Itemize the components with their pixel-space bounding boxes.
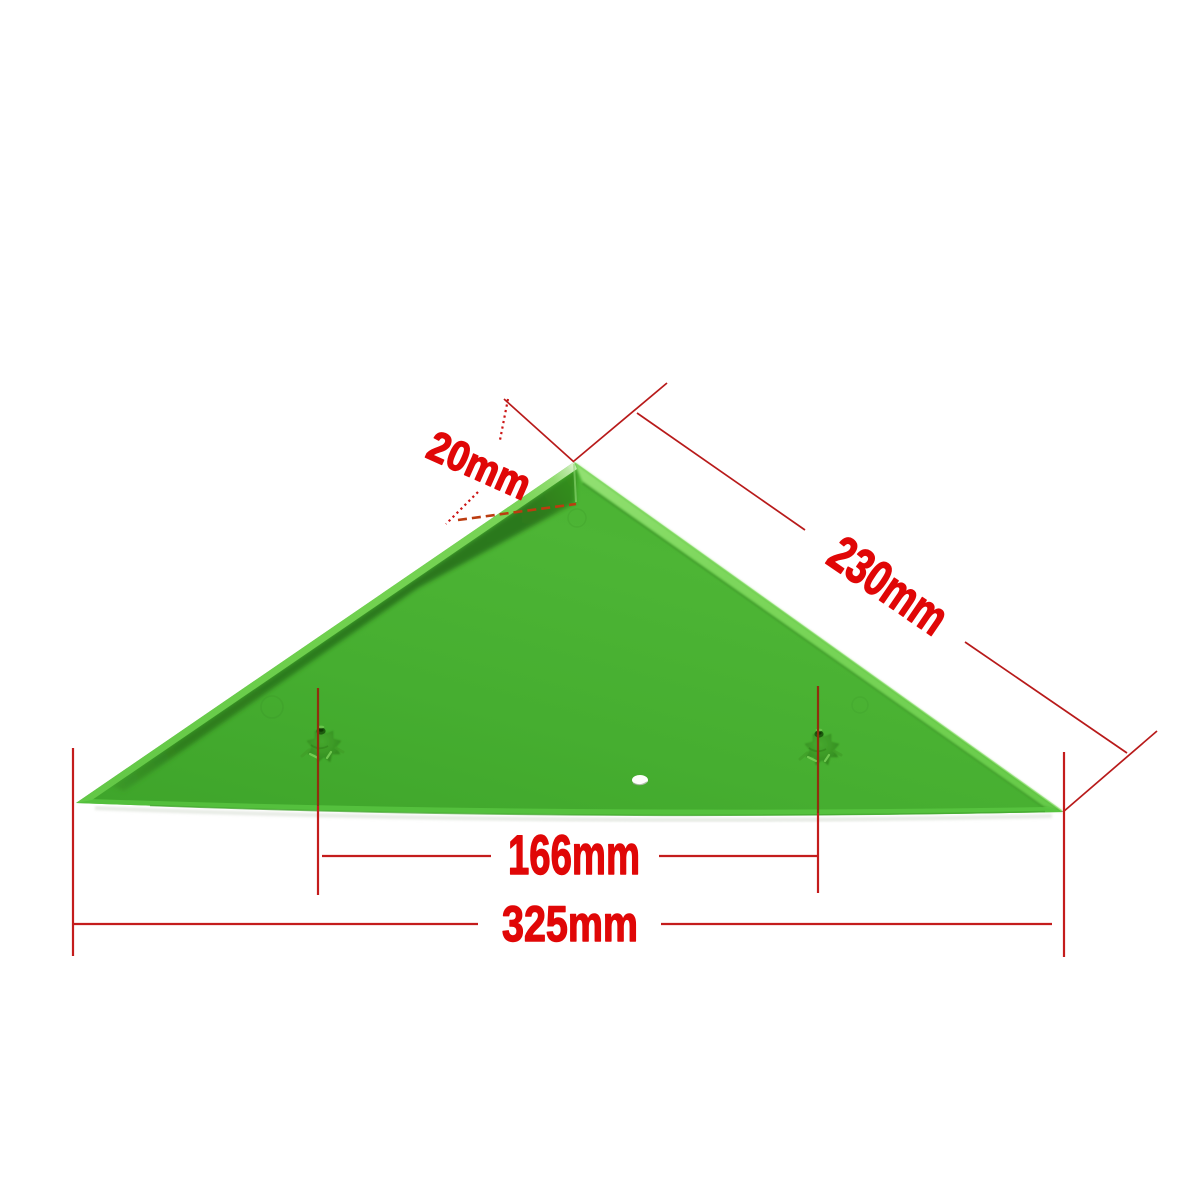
svg-text:166mm: 166mm [508,823,640,886]
svg-text:325mm: 325mm [502,896,638,952]
